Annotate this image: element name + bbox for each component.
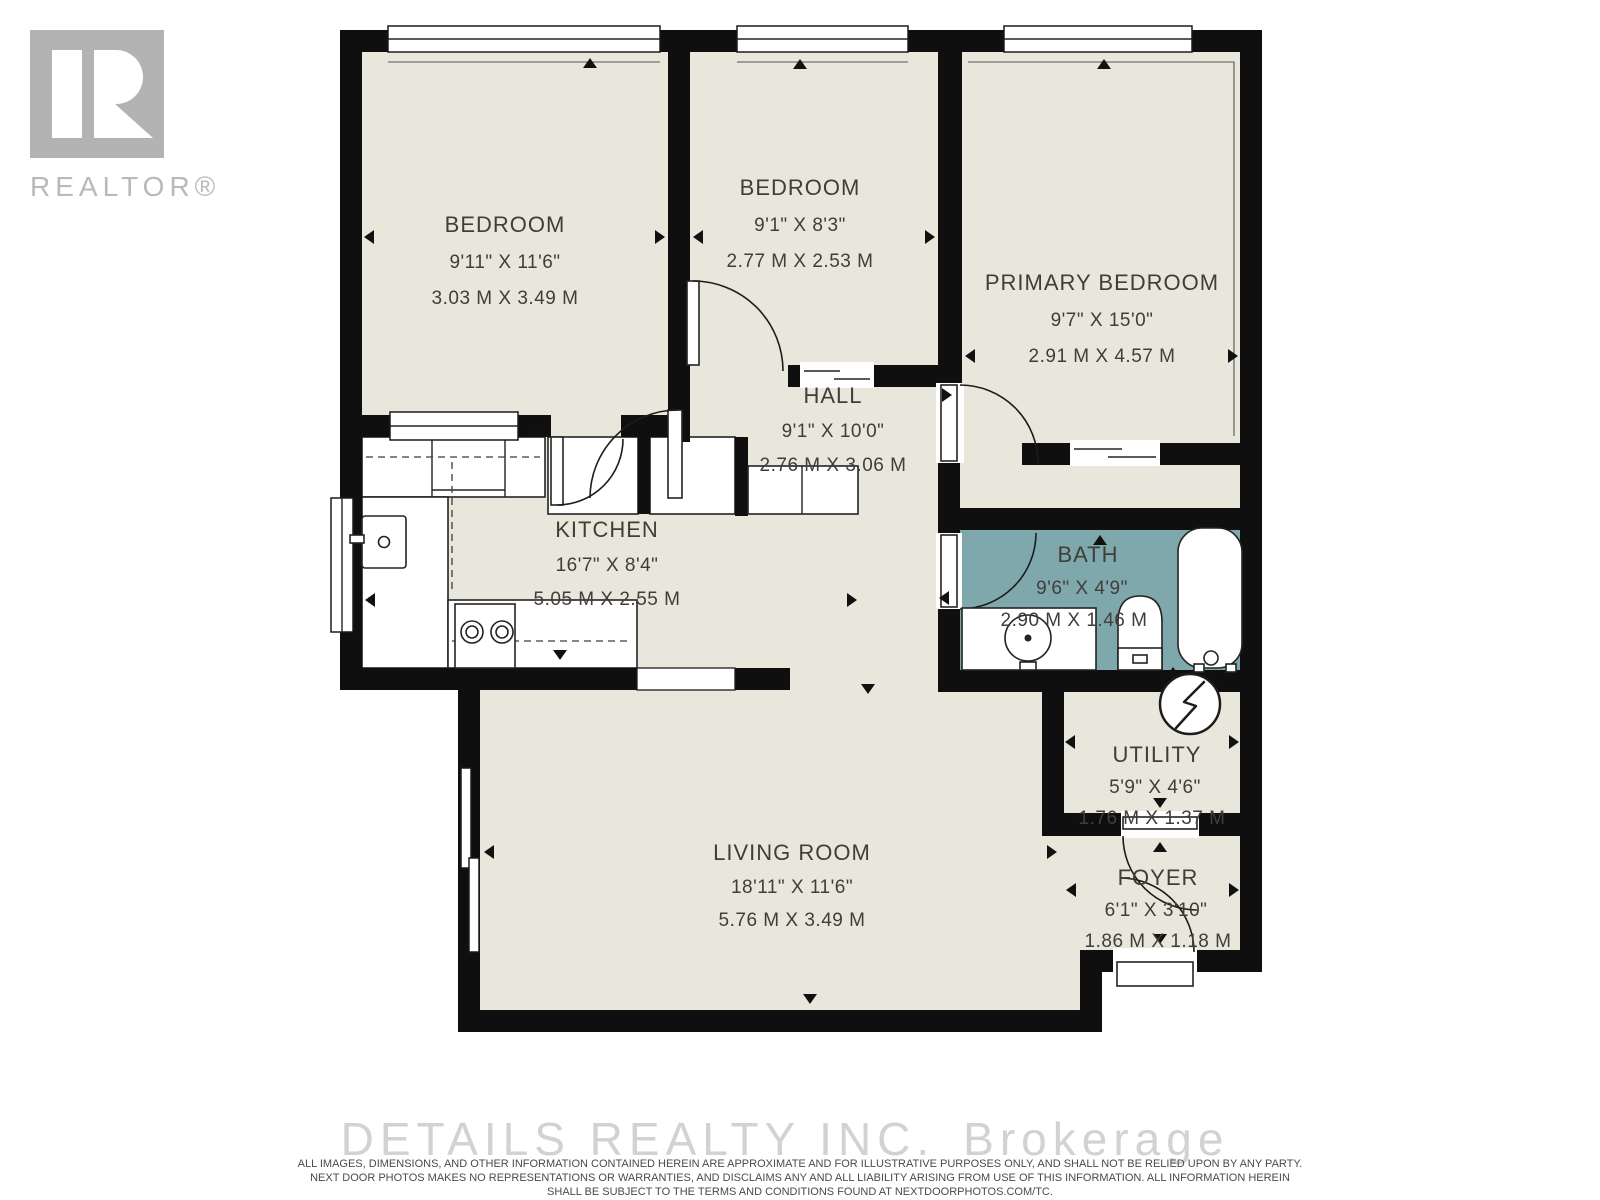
stove-burner-1-inner [466,626,478,638]
bedroom2-bottom-wall-b [874,365,938,387]
footer: DETAILS REALTY INC.Brokerage ALL IMAGES,… [298,1113,1303,1198]
bath-top-wall [938,508,1240,530]
room-metric: 2.76 M X 3.06 M [760,455,907,476]
room-metric: 2.91 M X 4.57 M [1029,346,1176,367]
kitchen-faucet-icon [350,535,364,543]
room-metric: 1.76 M X 1.37 M [1079,808,1226,829]
floor-plan-page: BEDROOM 9'11" X 11'6" 3.03 M X 3.49 M BE… [0,0,1600,1200]
hall-door-leaf [668,410,682,498]
label-living-room: LIVING ROOM 18'11" X 11'6" 5.76 M X 3.49… [713,840,871,931]
room-imperial: 9'1" X 10'0" [782,421,885,442]
vanity-pedestal [1020,662,1036,670]
kitchen-drain-icon [379,537,390,548]
room-name: FOYER [1118,865,1199,890]
living-room-window-panel-1 [461,768,471,868]
vanity-drain-dot [1025,635,1032,642]
living-room-bottom-wall [458,1010,1102,1032]
kitchen-pantry-box [650,437,735,514]
bedroom1-bedroom2-divider [668,52,690,442]
primary-closet-sliding-opening [1070,440,1160,466]
room-imperial: 9'11" X 11'6" [449,252,560,273]
kitchen-bottom-wall [340,668,640,690]
cabinet-wall-stub-2 [735,437,748,516]
toilet-button [1133,655,1147,663]
disclaimer-line-3: SHALL BE SUBJECT TO THE TERMS AND CONDIT… [547,1186,1053,1198]
stove-burner-2-inner [496,626,508,638]
bathtub-icon [1178,528,1242,668]
tub-handle-right [1226,664,1236,672]
room-imperial: 5'9" X 4'6" [1109,777,1201,798]
realtor-wordmark: REALTOR® [30,171,220,202]
living-room-window-panel-2 [469,858,479,952]
room-metric: 5.05 M X 2.55 M [534,589,681,610]
room-imperial: 18'11" X 11'6" [731,877,853,898]
room-imperial: 9'7" X 15'0" [1051,310,1154,331]
disclaimer-line-1: ALL IMAGES, DIMENSIONS, AND OTHER INFORM… [298,1158,1303,1170]
realtor-logo: REALTOR® [30,30,220,202]
room-imperial: 9'6" X 4'9" [1036,578,1128,599]
disclaimer-line-2: NEXT DOOR PHOTOS MAKES NO REPRESENTATION… [310,1172,1290,1184]
room-imperial: 6'1" X 3'10" [1105,900,1208,921]
tub-faucet-icon [1204,651,1218,665]
bedroom1-door-leaf [551,437,563,505]
bedroom2-bottom-wall-a [788,365,800,387]
hall-bath-wall-lower [938,609,960,670]
kitchen-bottom-wall-2 [735,668,790,690]
room-name: BATH [1057,542,1118,567]
bedroom2-door-leaf [687,281,699,365]
room-metric: 2.77 M X 2.53 M [727,251,874,272]
room-metric: 5.76 M X 3.49 M [719,910,866,931]
room-name: BEDROOM [445,212,566,237]
primary-closet-wall-b [1160,443,1240,465]
room-name: LIVING ROOM [713,840,871,865]
floor-plan-svg: BEDROOM 9'11" X 11'6" 3.03 M X 3.49 M BE… [0,0,1600,1200]
realtor-logo-r-stem [52,50,82,138]
label-bedroom-1: BEDROOM 9'11" X 11'6" 3.03 M X 3.49 M [432,212,579,309]
room-imperial: 9'1" X 8'3" [754,215,846,236]
room-metric: 2.90 M X 1.46 M [1001,610,1148,631]
room-metric: 1.86 M X 1.18 M [1085,931,1232,952]
tub-handle-left [1194,664,1204,672]
room-metric: 3.03 M X 3.49 M [432,288,579,309]
bedroom1-bottom-wall-a [340,415,390,437]
entry-door-leaf [1117,962,1193,986]
room-name: BEDROOM [740,175,861,200]
primary-closet-wall-a [1022,443,1070,465]
kitchen-top-counter [362,437,545,497]
cabinet-wall-stub [638,437,650,514]
room-name: KITCHEN [555,517,659,542]
room-imperial: 16'7" X 8'4" [556,555,659,576]
room-name: UTILITY [1113,742,1202,767]
room-name: PRIMARY BEDROOM [985,270,1219,295]
kitchen-pass-through [637,668,735,690]
bedroom2-primary-divider [938,52,962,383]
room-name: HALL [803,383,862,408]
